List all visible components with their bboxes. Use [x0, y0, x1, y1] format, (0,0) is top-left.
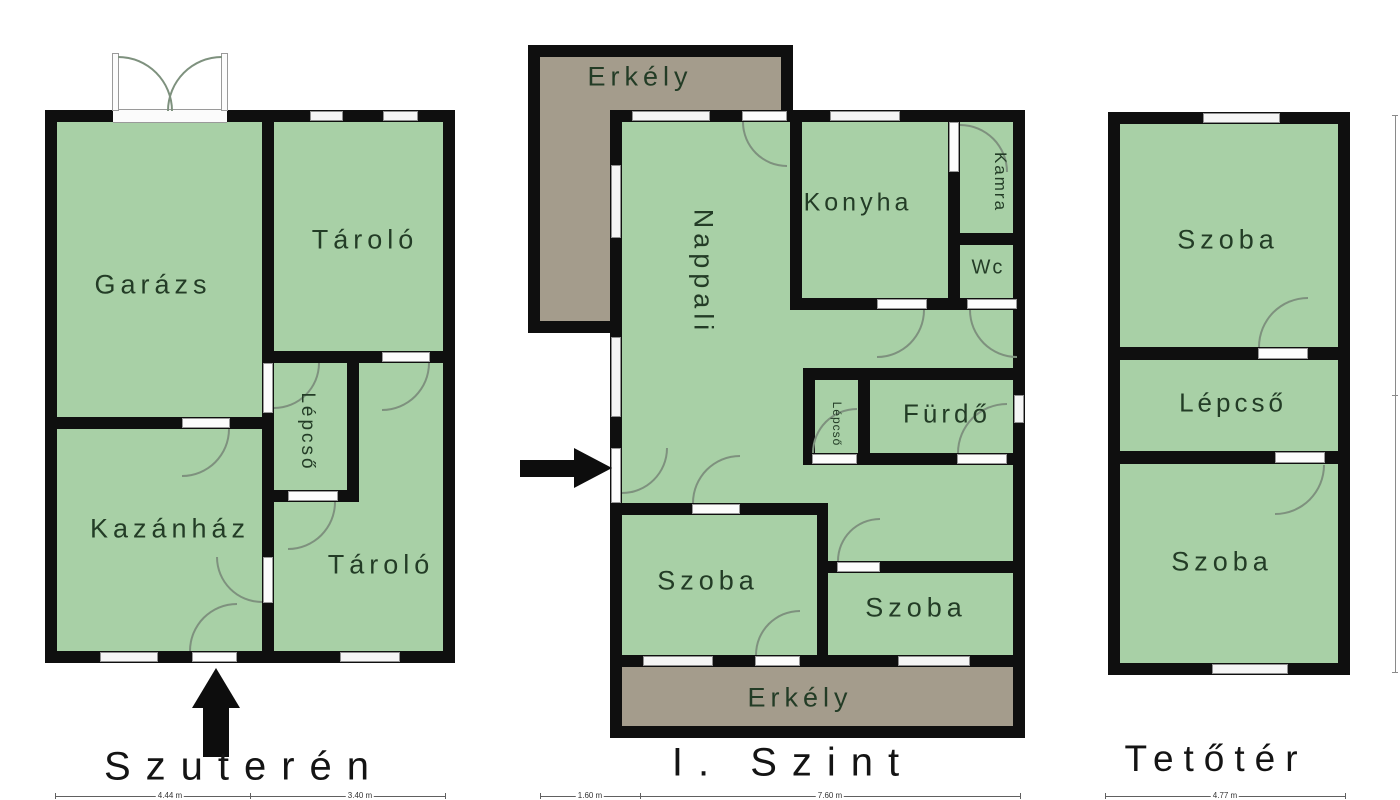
dimension-line-vertical: [1395, 115, 1396, 673]
dimension-tick: [540, 793, 541, 799]
wall: [1013, 110, 1025, 738]
wall: [45, 110, 57, 663]
room-label-lepcso: Lépcső: [296, 392, 318, 471]
window: [898, 656, 970, 666]
window: [830, 111, 900, 121]
door-leaf: [611, 448, 621, 503]
entrance-arrow-right-stem: [520, 460, 576, 477]
dimension-tick: [640, 793, 641, 799]
dimension-tick: [445, 793, 446, 799]
window: [1212, 664, 1288, 674]
wall: [803, 368, 1025, 380]
room-label-wc: Wc: [972, 257, 1005, 280]
wall: [610, 726, 1025, 738]
dimension-tick: [55, 793, 56, 799]
room-label-nappali: Nappali: [688, 209, 719, 336]
window: [643, 656, 713, 666]
room-label-lepcso-szint: Lépcső: [830, 402, 844, 447]
wall: [528, 321, 622, 333]
door-leaf: [1258, 348, 1308, 359]
door-leaf: [755, 656, 800, 666]
door-leaf: [288, 491, 338, 501]
floorplan-canvas: Garázs Tároló Lépcső Kazánház Tároló Szu…: [0, 0, 1400, 800]
room-label-lepcso-tetoter: Lépcső: [1179, 388, 1287, 419]
window: [1014, 395, 1024, 423]
door-leaf: [192, 652, 237, 662]
door-leaf: [812, 454, 857, 464]
wall: [1108, 112, 1120, 675]
window: [611, 337, 621, 417]
dimension-tick: [250, 793, 251, 799]
room-label-konyha: Konyha: [804, 189, 913, 218]
window: [310, 111, 343, 121]
wall: [858, 368, 870, 465]
wall: [443, 110, 455, 663]
room-label-garazs: Garázs: [94, 270, 211, 301]
room-label-erkely-also: Erkély: [747, 683, 852, 714]
window: [1203, 113, 1280, 123]
door-leaf: [837, 562, 880, 572]
wall: [528, 45, 540, 333]
door-leaf: [221, 53, 228, 111]
dimension-label: 4.44 m: [156, 791, 184, 800]
door-leaf: [957, 454, 1007, 464]
window: [100, 652, 158, 662]
dimension-line: [540, 796, 1020, 797]
room-label-kamra: Kamra: [990, 152, 1010, 212]
door-leaf: [1275, 452, 1325, 463]
room-label-erkely-felso: Erkély: [587, 62, 692, 93]
floor-title-szuteren: Szuterén: [104, 745, 384, 790]
room-label-szoba-felso: Szoba: [1177, 225, 1279, 256]
dimension-tick: [1392, 395, 1398, 396]
room-label-szoba-also: Szoba: [1171, 547, 1273, 578]
door-leaf: [263, 363, 273, 413]
dimension-label: 4.77 m: [1211, 791, 1239, 800]
room-label-furdo: Fürdő: [903, 399, 991, 430]
door-swing-arc: [118, 56, 173, 111]
dimension-tick: [1345, 793, 1346, 799]
wall: [790, 110, 802, 310]
dimension-label: 7.60 m: [816, 791, 844, 800]
dimension-label: 3.40 m: [346, 791, 374, 800]
room-label-szoba-jobb: Szoba: [865, 593, 967, 624]
floor-title-tetoter: Tetőtér: [1124, 738, 1307, 780]
entrance-arrow-up-icon: [192, 668, 240, 708]
wall: [948, 233, 1025, 245]
wall: [817, 503, 828, 667]
door-leaf: [877, 299, 927, 309]
window: [383, 111, 418, 121]
wall: [1338, 112, 1350, 675]
door-leaf: [263, 557, 273, 603]
window: [340, 652, 400, 662]
wall: [45, 417, 274, 429]
dimension-tick: [1105, 793, 1106, 799]
door-swing-arc: [167, 56, 222, 111]
room-label-kazanhaz: Kazánház: [90, 514, 250, 545]
door-leaf: [692, 504, 740, 514]
door-leaf: [182, 418, 230, 428]
room-label-tarolo-also: Tároló: [328, 550, 435, 581]
door-leaf: [967, 299, 1017, 309]
wall: [1108, 347, 1350, 360]
wall: [528, 45, 793, 57]
room-label-tarolo-felso: Tároló: [312, 225, 419, 256]
wall: [347, 351, 359, 502]
dimension-tick: [1392, 672, 1398, 673]
room-label-szoba-bal: Szoba: [657, 566, 759, 597]
dimension-tick: [1392, 115, 1398, 116]
dimension-label: 1.60 m: [576, 791, 604, 800]
door-leaf: [742, 111, 787, 121]
window: [611, 165, 621, 238]
door-leaf: [382, 352, 430, 362]
entrance-arrow-right-icon: [574, 448, 612, 488]
door-leaf: [949, 122, 959, 172]
floor-title-szint1: I. Szint: [672, 741, 914, 786]
dimension-tick: [1020, 793, 1021, 799]
window: [632, 111, 710, 121]
garage-door-sill: [113, 109, 227, 123]
